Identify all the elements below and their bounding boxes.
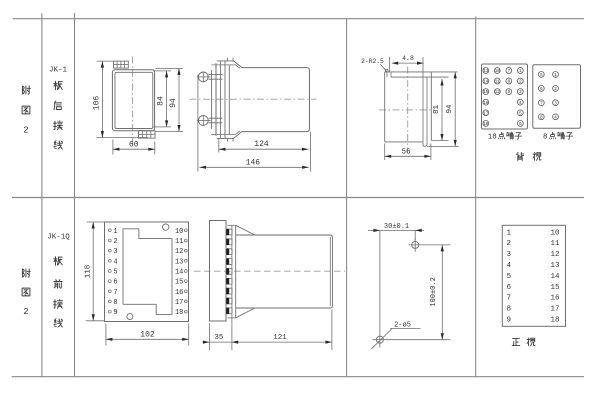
svg-text:12: 12 <box>495 89 501 95</box>
svg-text:9: 9 <box>507 317 512 325</box>
svg-text:6: 6 <box>519 121 522 127</box>
svg-text:16: 16 <box>483 100 489 106</box>
svg-text:15: 15 <box>550 284 560 292</box>
svg-text:100±0.2: 100±0.2 <box>430 277 438 306</box>
svg-text:10: 10 <box>550 229 560 237</box>
svg-text:5: 5 <box>507 273 512 281</box>
svg-text:6: 6 <box>507 284 512 292</box>
svg-text:2: 2 <box>507 240 512 248</box>
svg-text:8: 8 <box>543 134 548 142</box>
svg-text:10: 10 <box>495 68 501 74</box>
svg-text:2: 2 <box>554 86 557 92</box>
svg-text:12: 12 <box>550 251 559 259</box>
svg-text:16: 16 <box>175 289 183 297</box>
svg-text:8: 8 <box>507 79 510 85</box>
svg-text:7: 7 <box>540 100 543 106</box>
svg-text:5: 5 <box>540 72 543 78</box>
svg-text:12: 12 <box>175 248 183 256</box>
svg-text:8: 8 <box>113 299 117 307</box>
svg-text:2: 2 <box>23 126 28 136</box>
svg-text:9: 9 <box>507 89 510 95</box>
svg-text:1: 1 <box>554 72 557 78</box>
svg-text:18: 18 <box>550 317 559 325</box>
svg-text:4: 4 <box>519 100 522 106</box>
svg-text:8: 8 <box>540 114 543 120</box>
svg-text:8: 8 <box>507 306 512 314</box>
svg-text:3: 3 <box>113 248 117 256</box>
svg-text:2-R2.5: 2-R2.5 <box>361 58 384 65</box>
svg-text:56: 56 <box>401 148 411 156</box>
svg-text:11: 11 <box>495 79 501 85</box>
svg-text:9: 9 <box>113 309 117 317</box>
svg-text:2: 2 <box>23 307 28 317</box>
svg-text:6: 6 <box>113 279 117 287</box>
svg-text:13: 13 <box>175 258 183 266</box>
svg-text:7: 7 <box>113 289 117 297</box>
svg-text:17: 17 <box>483 110 489 116</box>
svg-text:11: 11 <box>175 238 183 246</box>
svg-text:14: 14 <box>550 273 560 281</box>
svg-text:106: 106 <box>92 96 101 111</box>
svg-text:14: 14 <box>483 79 489 85</box>
svg-text:JK-1Q: JK-1Q <box>47 234 70 242</box>
svg-text:121: 121 <box>273 334 287 342</box>
svg-text:1: 1 <box>519 68 522 74</box>
svg-text:17: 17 <box>175 299 183 307</box>
svg-text:13: 13 <box>483 68 489 74</box>
svg-text:5: 5 <box>113 269 117 277</box>
svg-text:18: 18 <box>488 134 497 142</box>
svg-text:4.8: 4.8 <box>402 55 414 62</box>
svg-text:81: 81 <box>433 105 441 115</box>
svg-text:7: 7 <box>507 68 510 74</box>
svg-text:94: 94 <box>446 104 454 114</box>
svg-text:146: 146 <box>246 158 261 167</box>
svg-text:84: 84 <box>157 96 166 106</box>
svg-text:4: 4 <box>554 114 557 120</box>
svg-text:JK-1: JK-1 <box>49 67 68 75</box>
svg-text:3: 3 <box>554 100 557 106</box>
svg-text:60: 60 <box>129 140 139 149</box>
svg-text:102: 102 <box>140 330 155 339</box>
svg-text:10: 10 <box>175 228 183 236</box>
svg-text:2: 2 <box>113 238 117 246</box>
svg-text:2: 2 <box>519 79 522 85</box>
svg-text:5: 5 <box>519 110 522 116</box>
svg-text:6: 6 <box>540 86 543 92</box>
svg-text:13: 13 <box>550 262 560 270</box>
svg-text:124: 124 <box>254 140 269 149</box>
svg-text:17: 17 <box>550 306 559 314</box>
svg-text:16: 16 <box>550 295 560 303</box>
svg-text:35: 35 <box>214 334 224 342</box>
svg-text:1: 1 <box>113 228 117 236</box>
svg-text:4: 4 <box>113 258 117 266</box>
svg-text:94: 94 <box>169 98 178 108</box>
svg-text:1: 1 <box>507 229 512 237</box>
svg-text:14: 14 <box>175 269 183 277</box>
svg-text:11: 11 <box>550 240 560 248</box>
svg-text:15: 15 <box>483 89 489 95</box>
svg-text:30±0.1: 30±0.1 <box>384 223 409 231</box>
svg-text:18: 18 <box>483 121 489 127</box>
svg-text:118: 118 <box>85 265 93 279</box>
svg-text:18: 18 <box>175 309 183 317</box>
svg-text:4: 4 <box>507 262 512 270</box>
svg-text:3: 3 <box>519 89 522 95</box>
svg-text:7: 7 <box>507 295 512 303</box>
svg-text:3: 3 <box>507 251 512 259</box>
svg-text:15: 15 <box>175 279 183 287</box>
